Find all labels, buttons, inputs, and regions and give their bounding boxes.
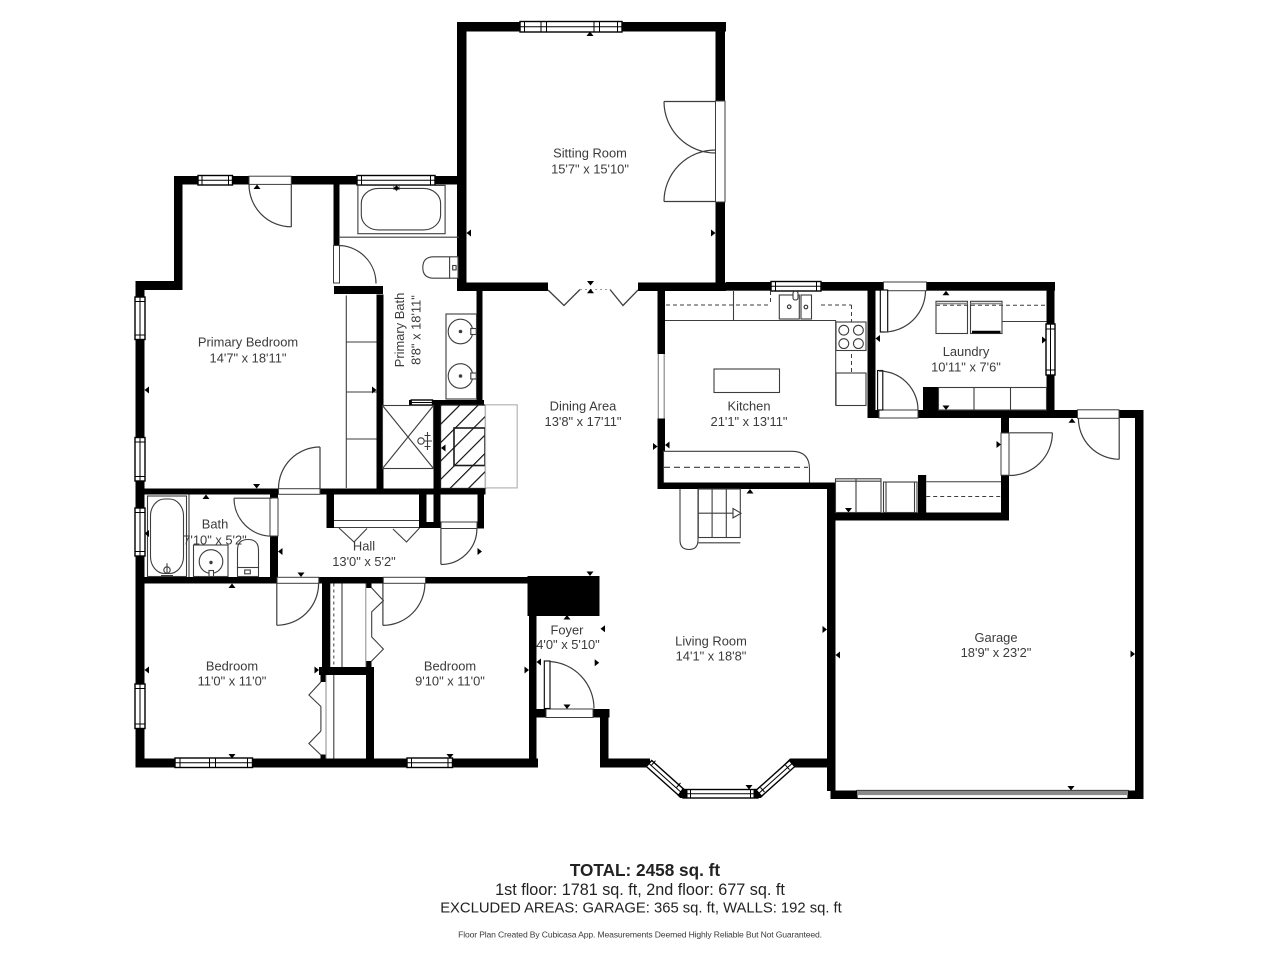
svg-text:Bedroom: Bedroom: [206, 659, 258, 674]
svg-text:7'10" x 5'2": 7'10" x 5'2": [183, 533, 247, 548]
svg-text:Kitchen: Kitchen: [728, 399, 771, 414]
svg-text:Garage: Garage: [975, 630, 1018, 645]
svg-text:15'7" x 15'10": 15'7" x 15'10": [551, 162, 629, 177]
svg-text:11'0" x 11'0": 11'0" x 11'0": [198, 674, 267, 689]
svg-text:18'9" x 23'2": 18'9" x 23'2": [961, 645, 1032, 660]
svg-text:Primary Bath: Primary Bath: [392, 293, 407, 368]
svg-text:EXCLUDED AREAS: GARAGE: 365 sq: EXCLUDED AREAS: GARAGE: 365 sq. ft, WALL…: [440, 901, 842, 917]
svg-text:4'0" x 5'10": 4'0" x 5'10": [536, 637, 600, 652]
svg-text:Floor Plan Created By Cubicasa: Floor Plan Created By Cubicasa App. Meas…: [458, 930, 822, 940]
svg-text:Hall: Hall: [353, 539, 375, 554]
svg-text:Foyer: Foyer: [551, 623, 585, 638]
svg-text:14'7" x 18'11": 14'7" x 18'11": [210, 351, 287, 366]
svg-text:Laundry: Laundry: [943, 344, 990, 359]
svg-text:14'1" x 18'8": 14'1" x 18'8": [676, 649, 747, 664]
svg-text:13'8" x 17'11": 13'8" x 17'11": [545, 414, 622, 429]
svg-text:Bath: Bath: [202, 517, 229, 532]
svg-text:Living Room: Living Room: [675, 634, 747, 649]
svg-text:Primary Bedroom: Primary Bedroom: [198, 335, 298, 350]
svg-text:8'8" x 18'11": 8'8" x 18'11": [409, 295, 424, 365]
svg-text:21'1" x 13'11": 21'1" x 13'11": [711, 414, 788, 429]
svg-text:9'10" x 11'0": 9'10" x 11'0": [415, 674, 485, 689]
svg-text:10'11" x 7'6": 10'11" x 7'6": [931, 360, 1001, 375]
svg-text:Dining Area: Dining Area: [550, 399, 617, 414]
svg-text:TOTAL: 2458 sq. ft: TOTAL: 2458 sq. ft: [570, 860, 721, 880]
svg-text:13'0" x 5'2": 13'0" x 5'2": [332, 554, 396, 569]
svg-text:Bedroom: Bedroom: [424, 659, 476, 674]
svg-text:Sitting Room: Sitting Room: [553, 146, 627, 161]
svg-text:1st floor: 1781 sq. ft, 2nd fl: 1st floor: 1781 sq. ft, 2nd floor: 677 s…: [495, 881, 785, 899]
